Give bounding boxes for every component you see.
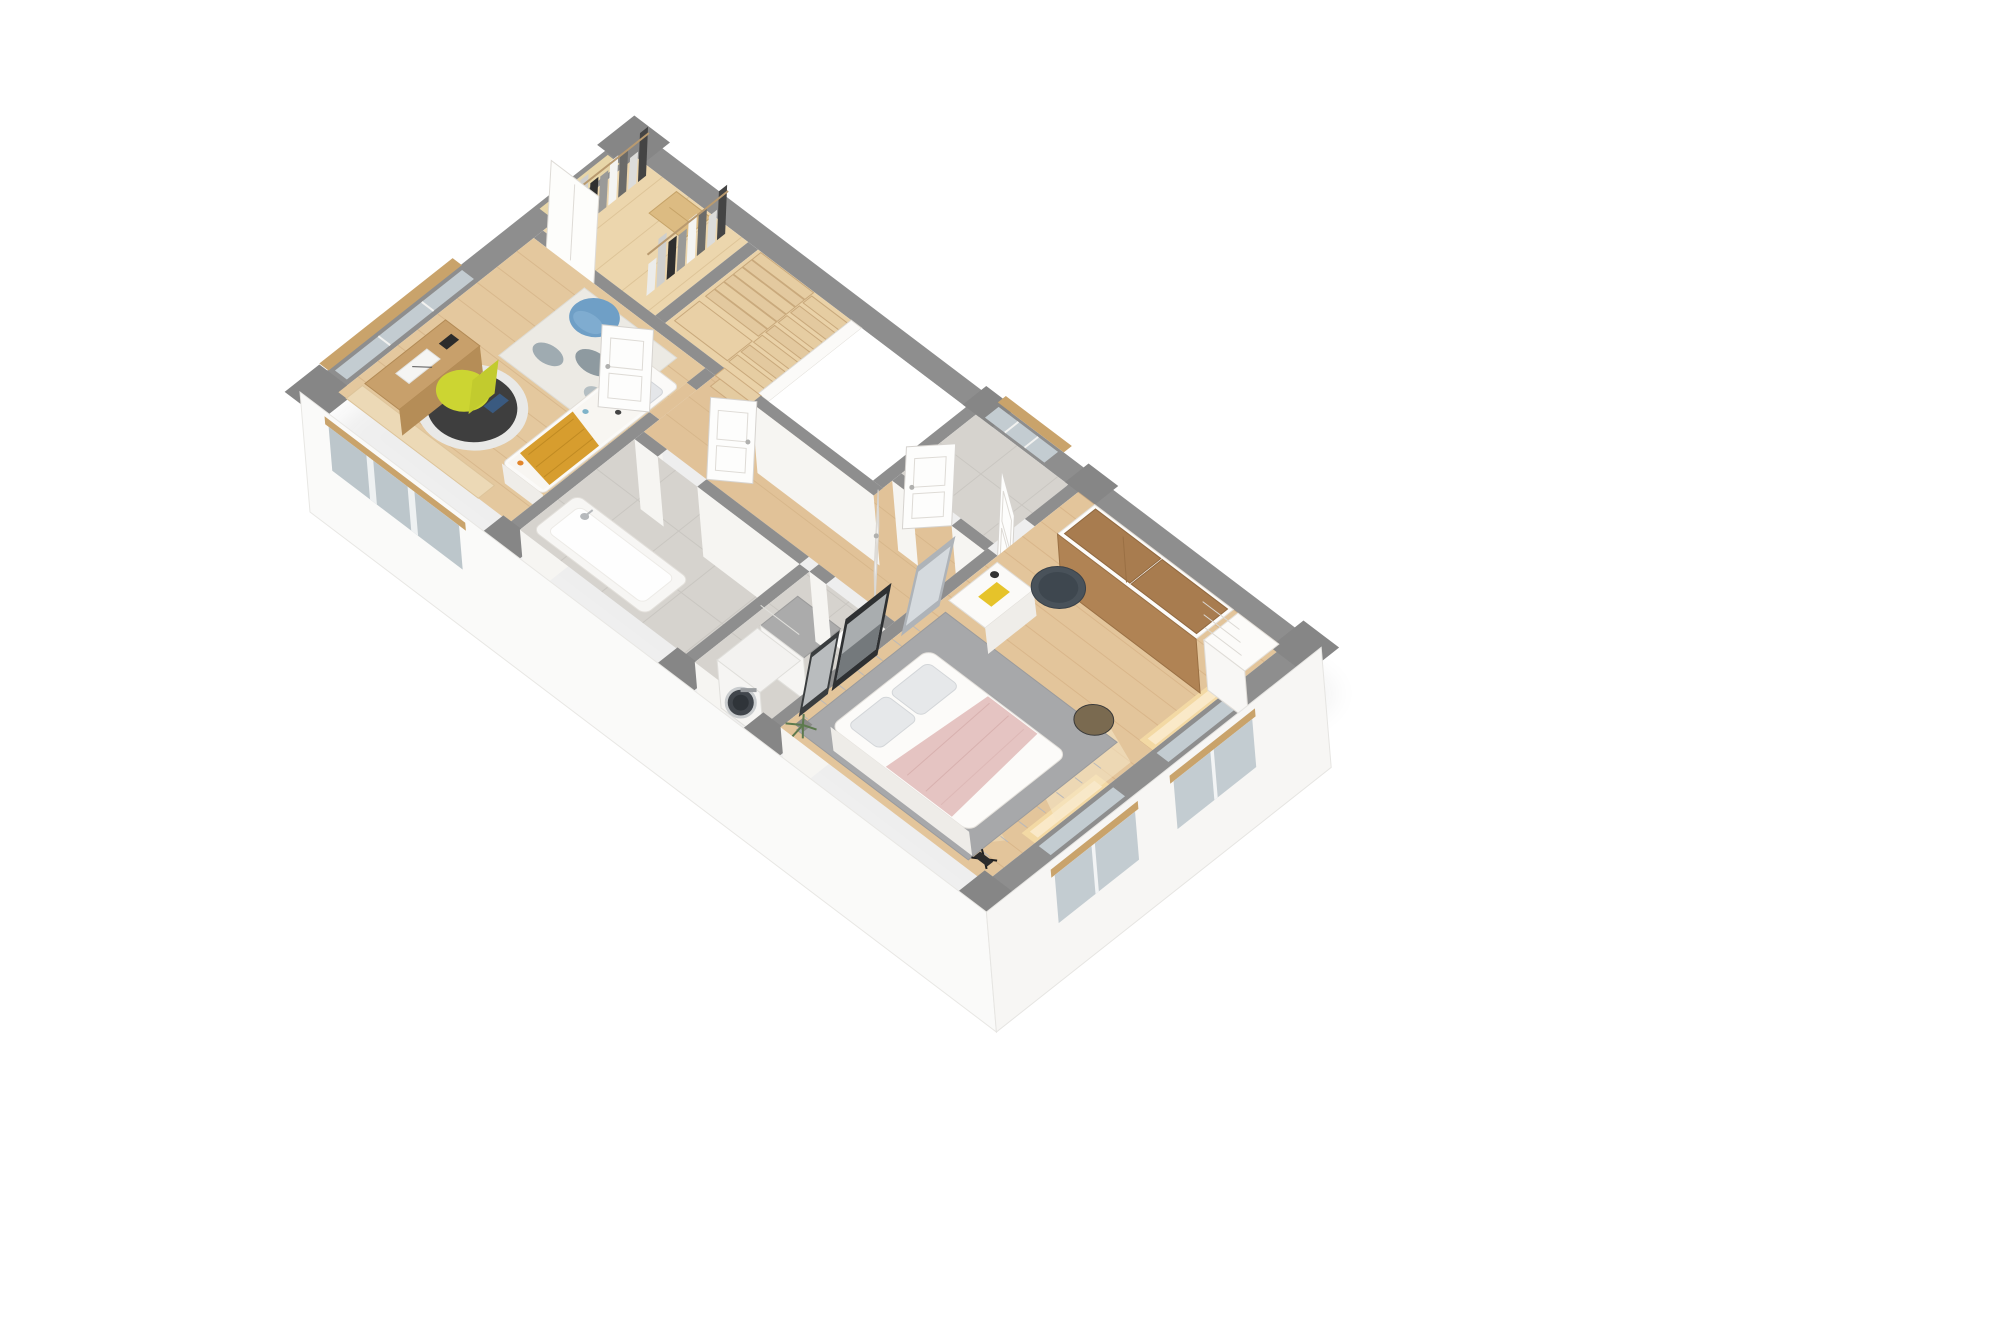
floor-plan-figure xyxy=(0,0,2000,1333)
entry-door xyxy=(902,444,955,529)
kids-door xyxy=(598,325,653,412)
bathroom-door xyxy=(707,397,757,483)
floor-plan-3d-render xyxy=(0,0,2000,1333)
